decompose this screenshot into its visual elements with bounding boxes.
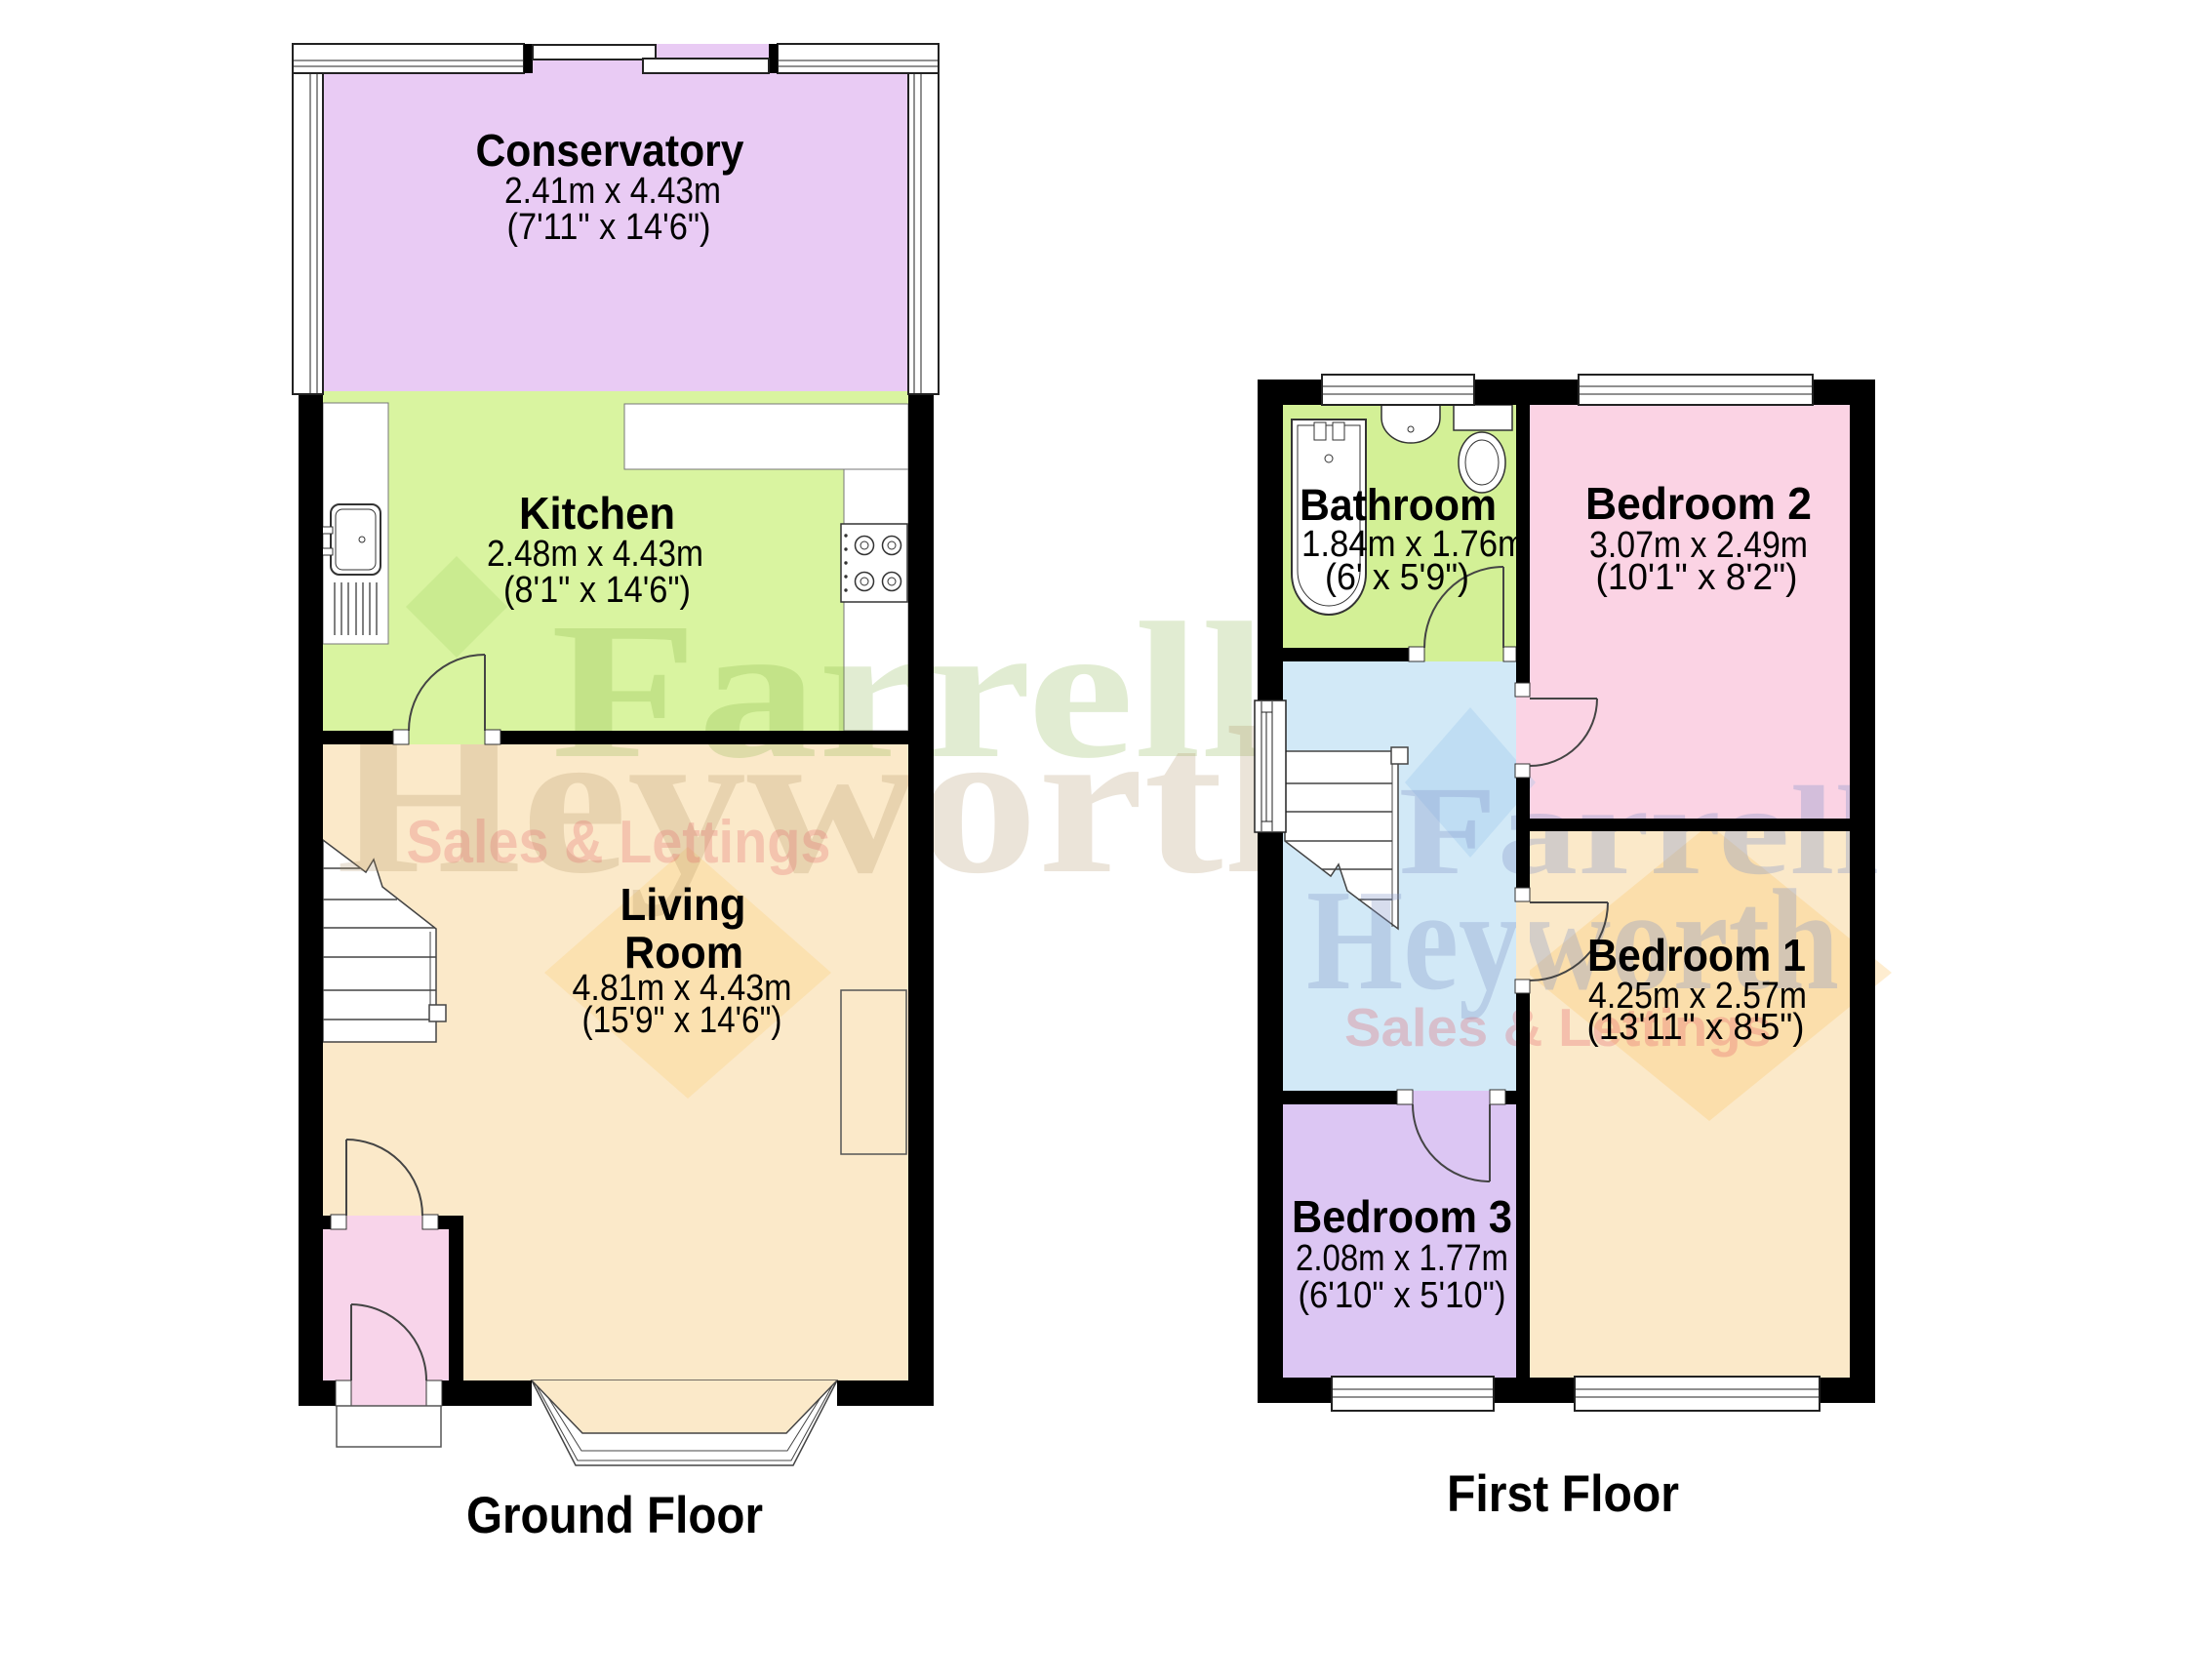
svg-text:(6'10" x 5'10"): (6'10" x 5'10") xyxy=(1299,1275,1506,1316)
svg-text:Living: Living xyxy=(620,879,746,930)
svg-text:2.48m x 4.43m: 2.48m x 4.43m xyxy=(487,534,703,575)
svg-text:2.41m x 4.43m: 2.41m x 4.43m xyxy=(504,171,721,212)
svg-text:(6' x 5'9"): (6' x 5'9") xyxy=(1325,557,1469,598)
svg-text:Bathroom: Bathroom xyxy=(1300,480,1497,530)
svg-text:(13'11" x 8'5"): (13'11" x 8'5") xyxy=(1587,1007,1805,1048)
svg-text:2.08m x 1.77m: 2.08m x 1.77m xyxy=(1296,1238,1508,1279)
svg-text:Ground Floor: Ground Floor xyxy=(466,1487,763,1544)
svg-text:(7'11" x 14'6"): (7'11" x 14'6") xyxy=(507,207,711,248)
svg-text:Conservatory: Conservatory xyxy=(476,125,744,176)
svg-text:First Floor: First Floor xyxy=(1447,1465,1679,1523)
svg-text:Bedroom 1: Bedroom 1 xyxy=(1587,930,1806,980)
svg-text:(8'1" x 14'6"): (8'1" x 14'6") xyxy=(503,570,691,611)
svg-text:Kitchen: Kitchen xyxy=(519,488,675,539)
svg-text:Sales & Lettings: Sales & Lettings xyxy=(407,809,831,876)
svg-text:Bedroom 2: Bedroom 2 xyxy=(1585,478,1812,529)
svg-text:Bedroom 3: Bedroom 3 xyxy=(1292,1191,1512,1242)
svg-text:(15'9" x 14'6"): (15'9" x 14'6") xyxy=(582,1000,782,1041)
svg-text:(10'1" x 8'2"): (10'1" x 8'2") xyxy=(1596,557,1798,598)
svg-text:Heyworth: Heyworth xyxy=(337,684,1356,917)
